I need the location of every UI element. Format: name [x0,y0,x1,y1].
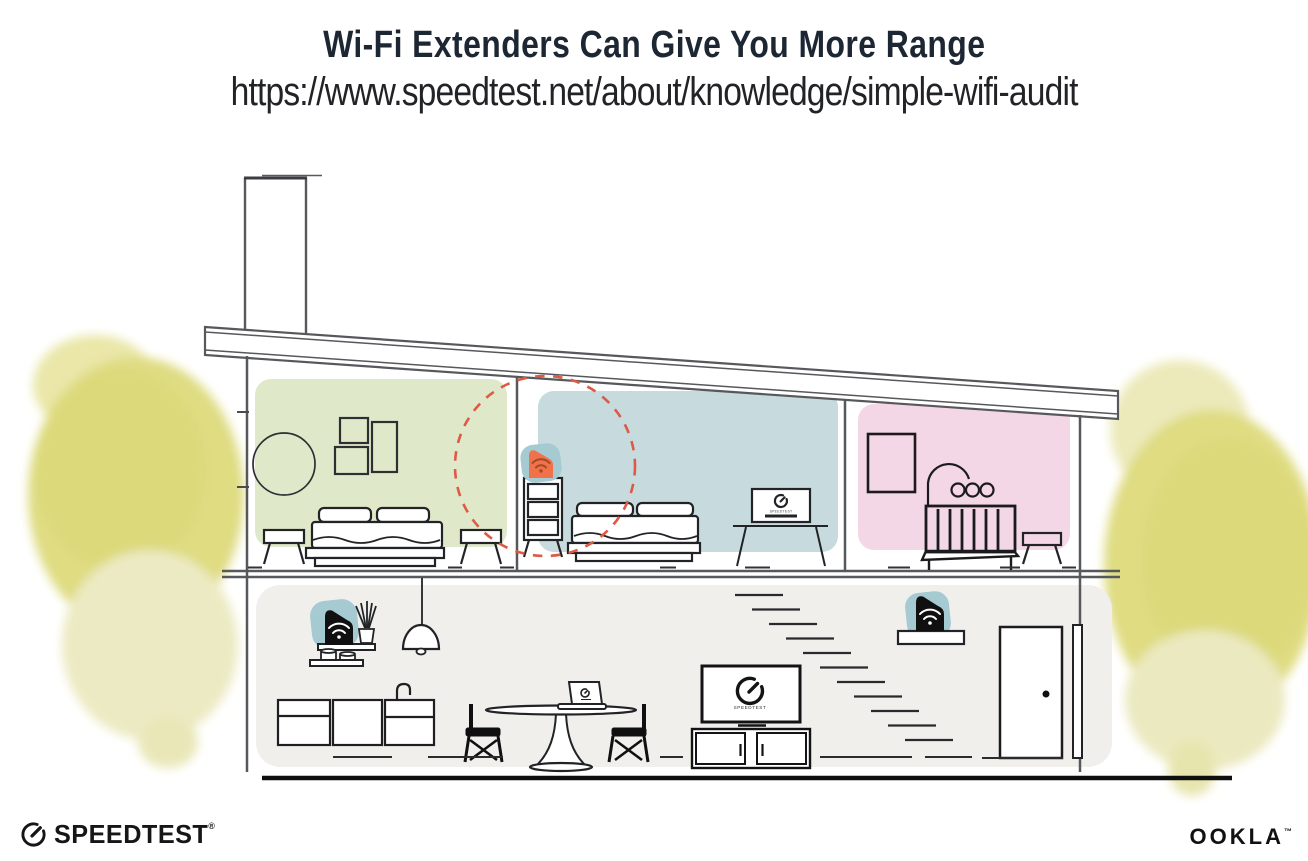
foliage-left [28,335,244,768]
chimney [244,176,322,345]
foliage-right [1104,360,1308,796]
media-console [692,729,810,768]
kitchen-cabinets [278,700,434,745]
trademark-mark: ™ [1284,827,1292,836]
door [1000,627,1062,758]
speedtest-gauge-icon [20,821,47,848]
door-knob [1043,691,1050,698]
living-tv: SPEEDTEST [702,666,800,726]
ookla-wordmark: OOKLA [1190,824,1284,849]
wall-panel [1073,625,1082,758]
bedroom-tv-label: SPEEDTEST [770,510,793,514]
bed [568,503,700,561]
house-illustration: SPEEDTEST [0,0,1308,861]
registered-mark: ® [208,821,215,831]
speedtest-logo: SPEEDTEST® [20,819,220,850]
speedtest-wordmark: SPEEDTEST® [54,819,215,850]
ookla-logo: OOKLA™ [1190,824,1292,850]
pillow [377,508,429,522]
pillow [319,508,371,522]
wifi-extender-bedroom [519,442,563,484]
wall-shelf [898,631,964,644]
pillow [637,503,693,516]
living-tv-label: SPEEDTEST [734,705,767,710]
nursery-wall [858,404,1070,550]
